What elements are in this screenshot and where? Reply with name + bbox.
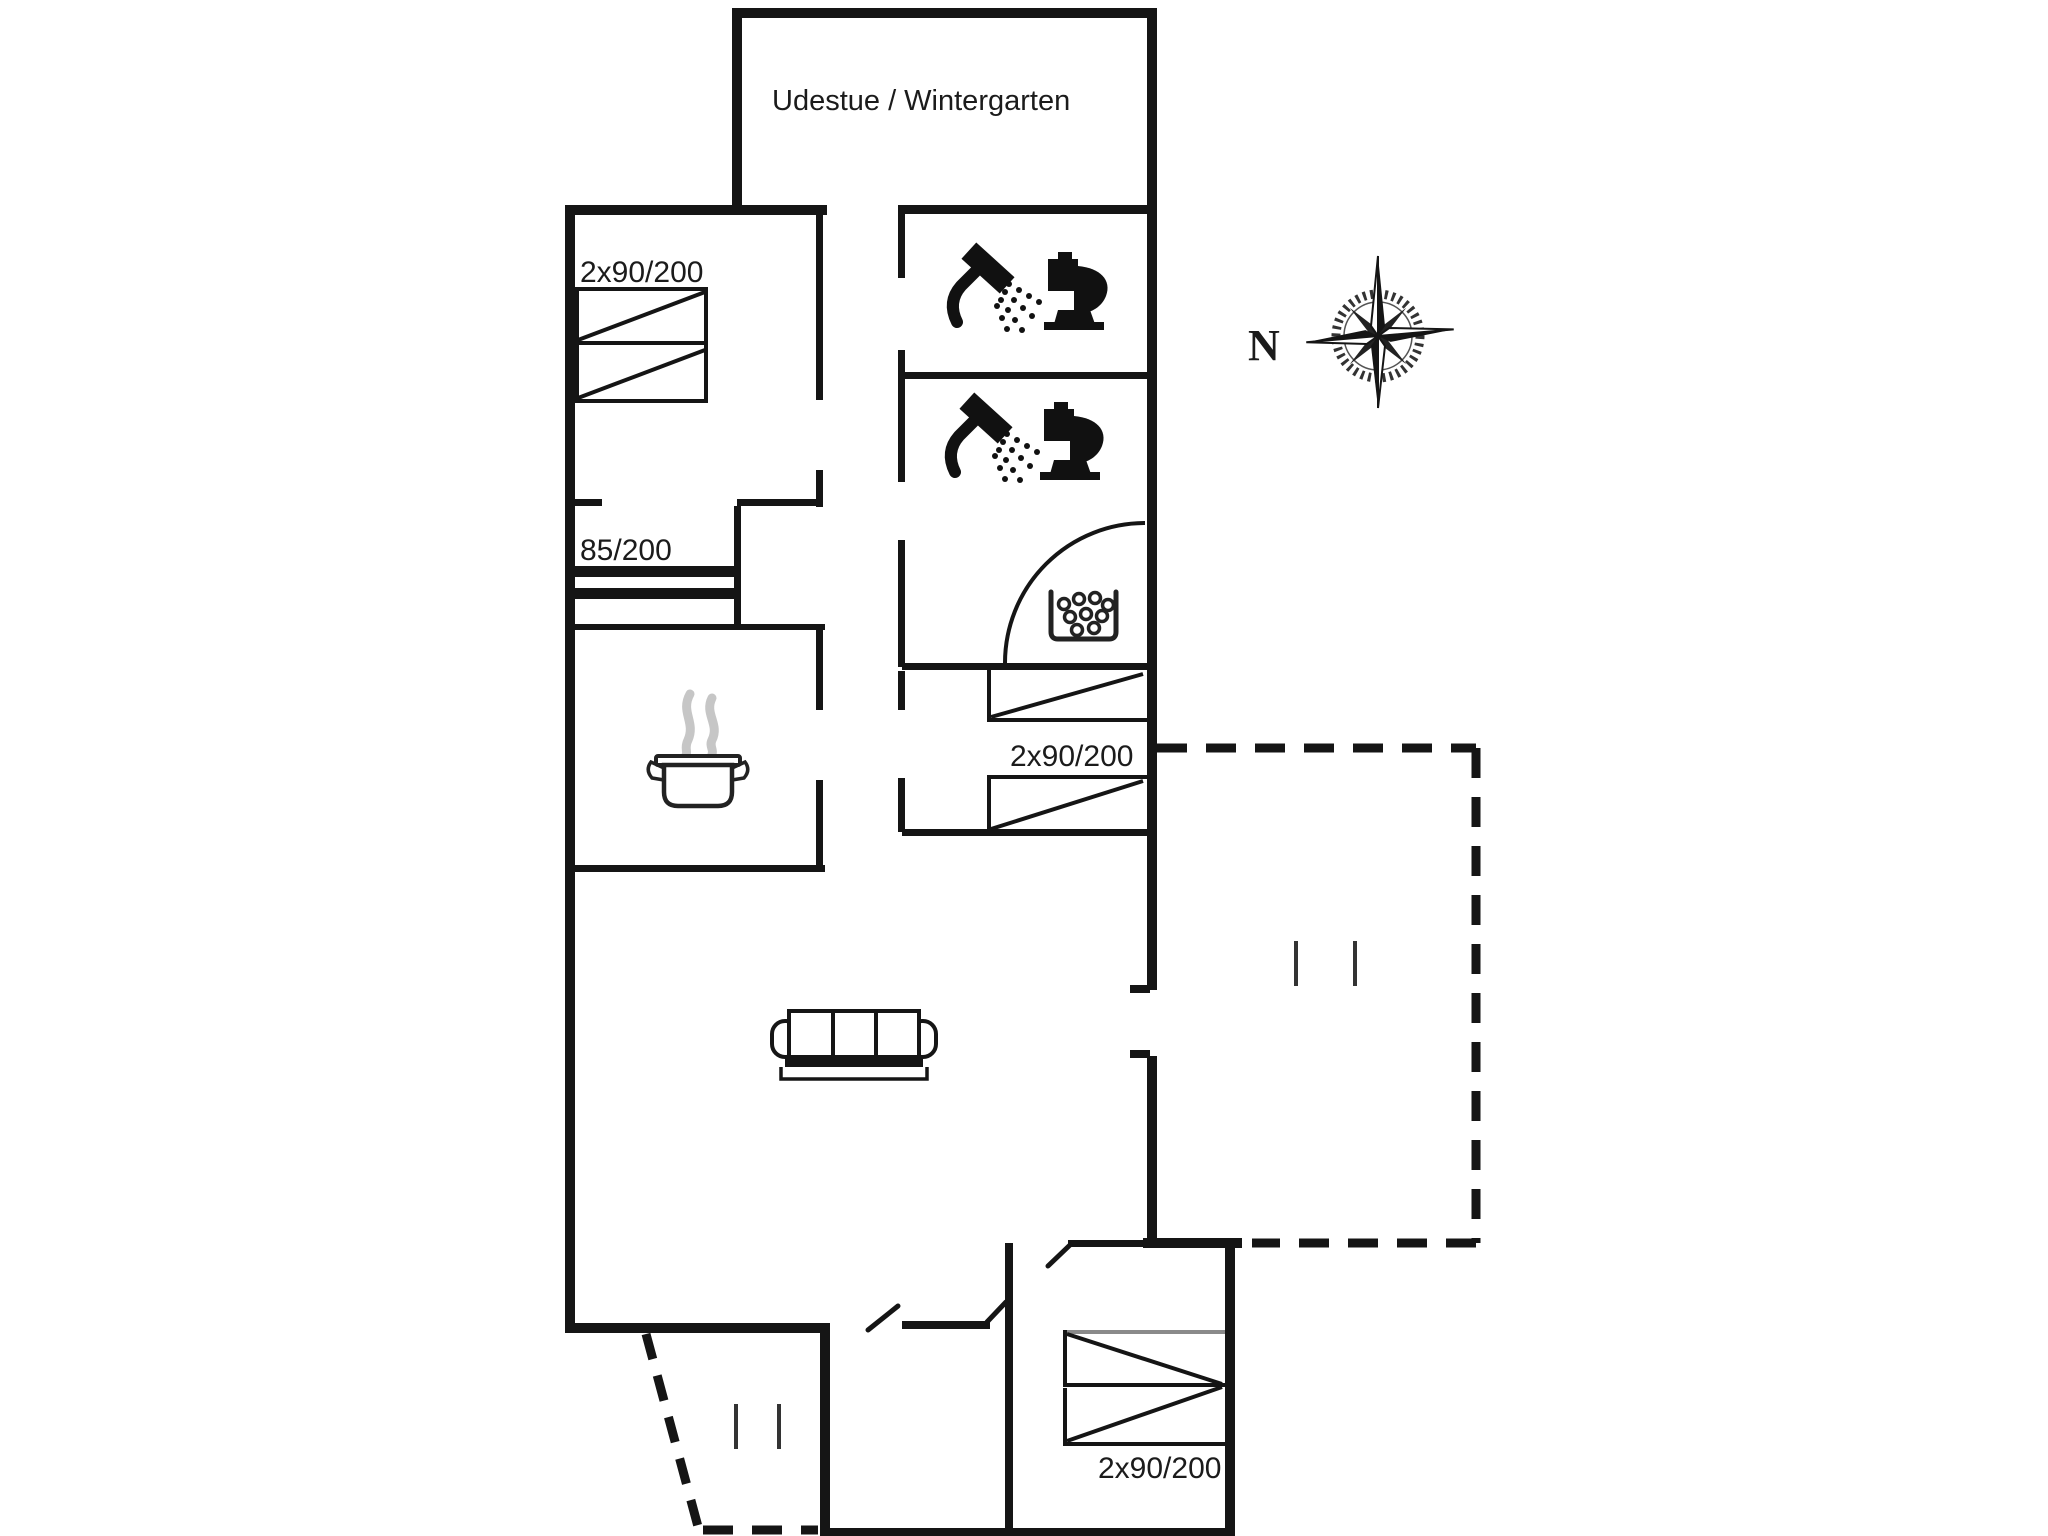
steam-icon	[710, 698, 715, 754]
floor-plan: Udestue / Wintergarten 2x90/200 85/200 2…	[0, 0, 2048, 1536]
terrace-dashed-outline-right	[1157, 748, 1476, 1243]
terrace-dashed-outline-bottom	[646, 1334, 818, 1534]
toilet-icon	[1044, 252, 1108, 330]
shower-icon	[953, 258, 1042, 333]
bed-diagonals	[578, 292, 1222, 1441]
bed-size-label-mid-right: 2x90/200	[1010, 740, 1133, 773]
door-leaves	[868, 1245, 1070, 1330]
sauna-stove-icon	[1051, 592, 1116, 639]
steam-icon	[686, 694, 690, 755]
cooking-pot-icon	[648, 694, 748, 806]
bed-size-label-alcove: 85/200	[580, 534, 672, 567]
bed-size-label-bottom-right: 2x90/200	[1098, 1452, 1221, 1485]
shower-icon	[951, 408, 1040, 483]
compass-north-label: N	[1248, 322, 1280, 370]
toilet-icon	[1040, 402, 1104, 480]
bed-size-label-top-left: 2x90/200	[580, 256, 703, 289]
sofa-icon	[772, 1011, 936, 1079]
compass-rose-icon	[1306, 256, 1455, 408]
wintergarten-label: Udestue / Wintergarten	[772, 86, 1070, 118]
